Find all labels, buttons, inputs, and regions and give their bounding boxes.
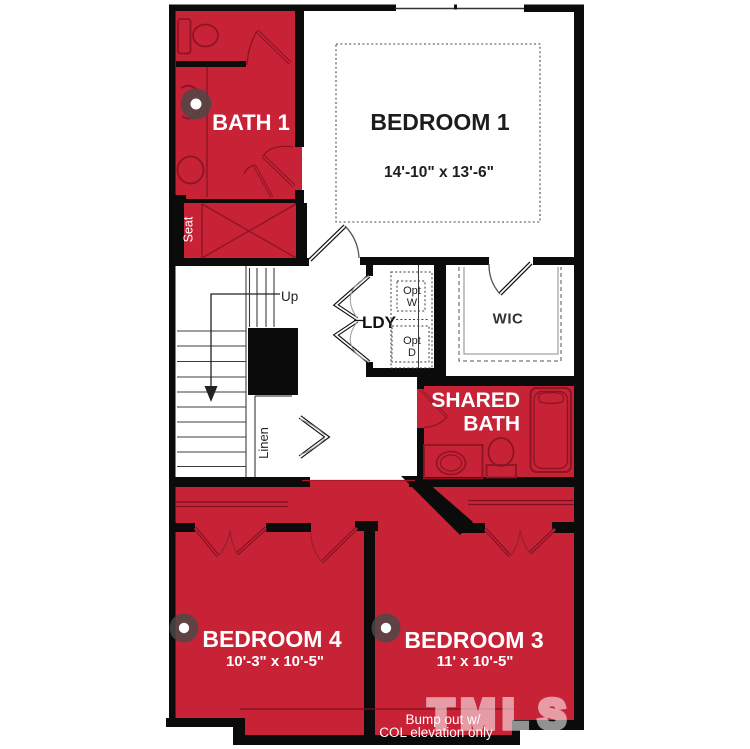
svg-text:D: D <box>408 347 416 359</box>
svg-text:Seat: Seat <box>182 216 196 242</box>
svg-text:BEDROOM 1: BEDROOM 1 <box>370 109 510 135</box>
svg-text:Opt: Opt <box>403 285 421 297</box>
svg-text:10'-3" x 10'-5": 10'-3" x 10'-5" <box>226 653 324 670</box>
svg-text:M: M <box>461 691 495 737</box>
svg-text:L: L <box>502 691 527 737</box>
svg-text:S: S <box>538 691 565 737</box>
svg-text:BEDROOM 3: BEDROOM 3 <box>404 627 543 653</box>
svg-text:Opt: Opt <box>403 335 421 347</box>
svg-text:11' x 10'-5": 11' x 10'-5" <box>437 653 514 670</box>
svg-text:T: T <box>428 691 453 737</box>
svg-text:14'-10" x 13'-6": 14'-10" x 13'-6" <box>384 164 494 181</box>
svg-text:BATH 1: BATH 1 <box>212 110 290 135</box>
svg-text:WIC: WIC <box>493 311 524 328</box>
svg-text:SHARED: SHARED <box>431 389 520 412</box>
svg-text:Up: Up <box>281 289 298 304</box>
svg-text:BATH: BATH <box>463 413 520 436</box>
svg-text:W: W <box>407 297 418 309</box>
svg-text:Linen: Linen <box>256 427 271 459</box>
svg-text:BEDROOM 4: BEDROOM 4 <box>202 626 342 652</box>
